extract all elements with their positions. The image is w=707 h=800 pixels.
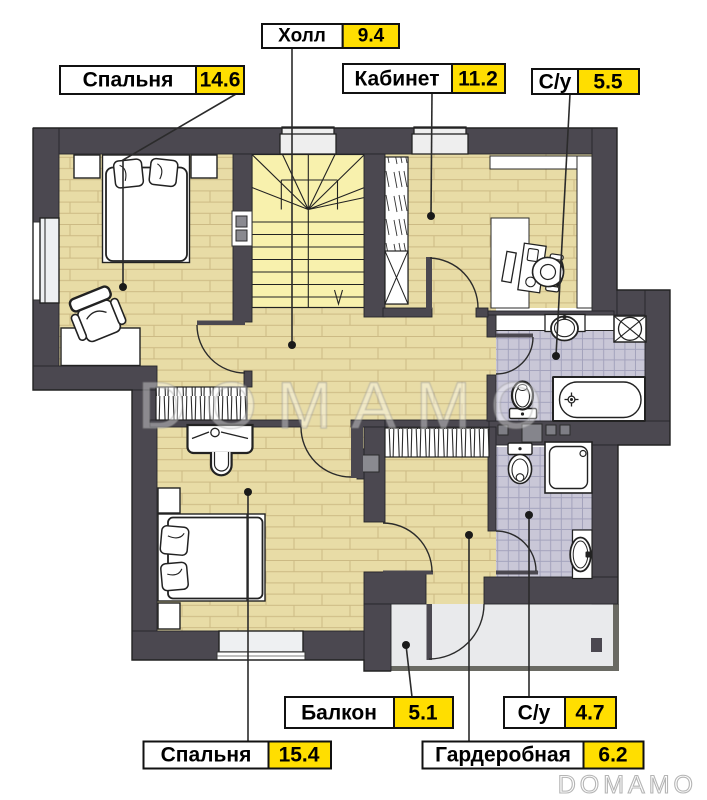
svg-text:9.4: 9.4 bbox=[358, 26, 385, 47]
svg-text:11.2: 11.2 bbox=[458, 68, 498, 91]
svg-text:Гардеробная: Гардеробная bbox=[435, 744, 571, 767]
svg-text:DOMAMO: DOMAMO bbox=[138, 368, 562, 442]
svg-text:Спальня: Спальня bbox=[83, 69, 174, 92]
svg-text:С/у: С/у bbox=[539, 71, 572, 94]
svg-text:С/у: С/у bbox=[518, 702, 551, 725]
svg-text:6.2: 6.2 bbox=[598, 744, 627, 767]
svg-text:5.5: 5.5 bbox=[593, 71, 623, 94]
svg-text:15.4: 15.4 bbox=[279, 744, 320, 767]
svg-text:Кабинет: Кабинет bbox=[354, 68, 439, 91]
svg-text:Балкон: Балкон bbox=[301, 702, 377, 725]
svg-text:Холл: Холл bbox=[278, 26, 326, 47]
svg-text:DOMAMO: DOMAMO bbox=[558, 771, 697, 799]
svg-text:Спальня: Спальня bbox=[161, 744, 252, 767]
svg-text:5.1: 5.1 bbox=[408, 702, 438, 725]
svg-text:4.7: 4.7 bbox=[575, 702, 604, 725]
svg-text:14.6: 14.6 bbox=[200, 69, 241, 92]
